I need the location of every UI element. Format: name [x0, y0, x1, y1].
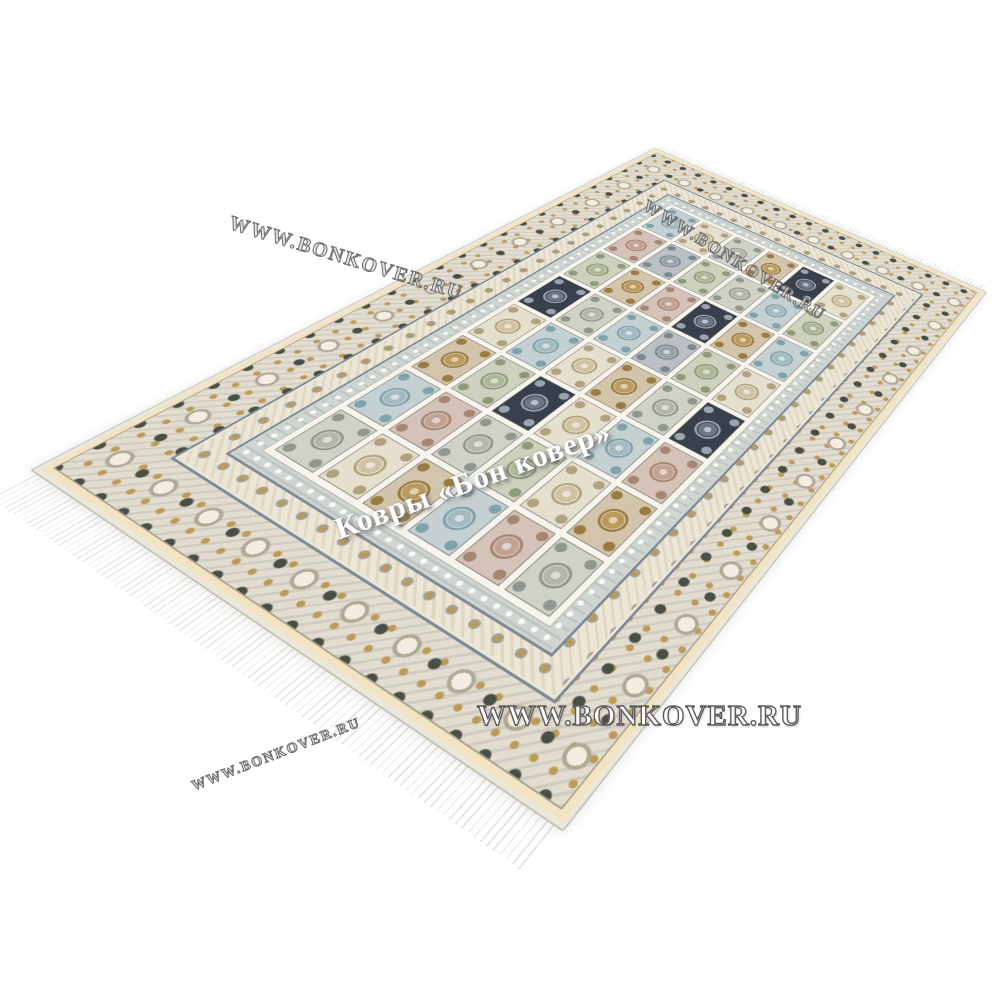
- rug: [30, 148, 987, 832]
- product-photo: WWW.BONKOVER.RU WWW.BONKOVER.RU Ковры «Б…: [0, 0, 1000, 1000]
